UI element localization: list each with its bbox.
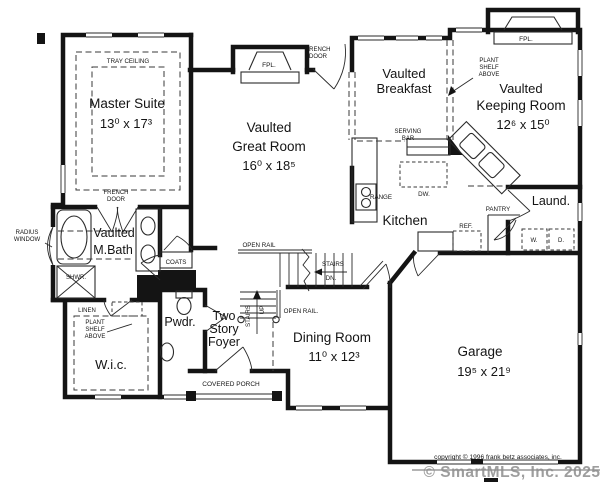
label-stairs: STAIRS [322, 261, 344, 268]
sink [141, 217, 155, 235]
label-open-rail-2: OPEN RAIL. [284, 308, 319, 315]
label-garage: Garage [457, 344, 502, 359]
label-kitchen: Kitchen [382, 213, 427, 228]
label-breakfast-vaulted: Vaulted [382, 66, 425, 81]
kitchen-sink [448, 122, 520, 194]
garage-entry-door [414, 253, 441, 276]
great-breakfast-columns [349, 72, 355, 140]
label-great-dims: 16⁰ x 18⁵ [242, 158, 295, 173]
smartmls-watermark: © SmartMLS, Inc. 2025 [412, 464, 600, 482]
label-plant-2: PLANT [479, 58, 499, 64]
label-open-rail: OPEN RAIL [242, 242, 276, 249]
newel-post [238, 316, 244, 322]
label-pantry: PANTRY [486, 206, 511, 213]
counter [418, 232, 453, 251]
label-great-vaulted: Vaulted [247, 120, 292, 135]
label-window: WINDOW [14, 237, 41, 243]
label-linen: LINEN [78, 308, 96, 314]
floor-plan-canvas: TRAY CEILING Master Suite 13⁰ x 17³ FREN… [0, 0, 600, 482]
label-foyer-1: Two [213, 309, 236, 323]
label-tray-ceiling: TRAY CEILING [107, 58, 150, 65]
clipped-mark [484, 478, 498, 482]
label-foyer-3: Foyer [208, 335, 240, 349]
porch-edge [186, 391, 282, 401]
pantry-closet [488, 215, 520, 253]
label-serving: SERVING [395, 129, 422, 135]
label-dining-dims: 11⁰ x 12³ [308, 349, 360, 364]
label-keeping-dims: 12⁶ x 15⁰ [496, 117, 549, 132]
stairs-dn-arrow [314, 269, 322, 276]
stairs-up-arrow [253, 290, 261, 299]
radius-window [45, 227, 56, 265]
label-door-2: DOOR [309, 54, 328, 60]
label-pwdr: Pwdr. [164, 315, 195, 329]
label-door: DOOR [107, 197, 126, 203]
label-fpl-great: FPL. [262, 62, 276, 69]
sink [141, 245, 155, 263]
label-above: ABOVE [85, 334, 106, 340]
refrigerator [453, 231, 481, 251]
label-shelf-2: SHELF [479, 65, 499, 71]
label-stairs-up: STAIRS [245, 305, 252, 327]
copyright-text: copyright © 1996 frank betz associates, … [434, 453, 562, 461]
label-dn: DN. [326, 275, 337, 282]
label-shelf: SHELF [85, 327, 105, 333]
dishwasher [400, 162, 447, 187]
label-washer: W. [531, 238, 538, 244]
label-master-suite: Master Suite [89, 96, 165, 111]
label-bar: BAR [402, 136, 415, 142]
label-dw: DW. [418, 191, 430, 198]
watermark-text: © SmartMLS, Inc. 2025 [424, 464, 600, 481]
label-mbath: M.Bath [93, 243, 133, 257]
porch-post [272, 391, 282, 401]
label-shwr: SHWR. [66, 275, 86, 281]
label-master-suite-dims: 13⁰ x 17³ [100, 116, 153, 131]
laundry-door [508, 190, 530, 221]
bathtub [57, 210, 91, 264]
label-ref: REF. [459, 223, 473, 230]
label-french: FRENCH [104, 190, 129, 196]
powder-sink [161, 343, 174, 361]
vanity [136, 209, 160, 271]
front-door [215, 347, 252, 371]
label-range: RANGE [370, 194, 392, 201]
label-dining: Dining Room [293, 330, 371, 345]
floor-plan-page: TRAY CEILING Master Suite 13⁰ x 17³ FREN… [0, 0, 600, 482]
porch-post [186, 391, 196, 401]
label-dryer: D. [558, 238, 564, 244]
label-mbath-vaulted: Vaulted [93, 226, 135, 240]
label-breakfast: Breakfast [377, 81, 432, 96]
label-fpl-keeping: FPL. [519, 36, 533, 43]
label-keeping-vaulted: Vaulted [499, 81, 542, 96]
label-great-room: Great Room [232, 139, 306, 154]
label-keeping-room: Keeping Room [476, 98, 565, 113]
fixtures [57, 122, 574, 361]
label-garage-dims: 19⁵ x 21⁹ [457, 364, 511, 379]
label-foyer-2: Story [209, 322, 239, 336]
label-above-2: ABOVE [479, 72, 500, 78]
newel-post [273, 316, 279, 322]
label-coats: COATS [166, 259, 187, 266]
label-up: UP [259, 306, 266, 315]
label-french-2: FRENCH [306, 47, 331, 53]
label-laundry: Laund. [532, 194, 570, 208]
coats-door [164, 236, 192, 250]
corner-tick [37, 33, 45, 44]
ceiling-lines [58, 40, 506, 390]
label-radius: RADIUS [16, 230, 39, 236]
pantry-door [494, 218, 516, 240]
label-plant: PLANT [85, 320, 105, 326]
label-wic: W.i.c. [95, 357, 127, 372]
label-covered-porch: COVERED PORCH [202, 381, 260, 388]
